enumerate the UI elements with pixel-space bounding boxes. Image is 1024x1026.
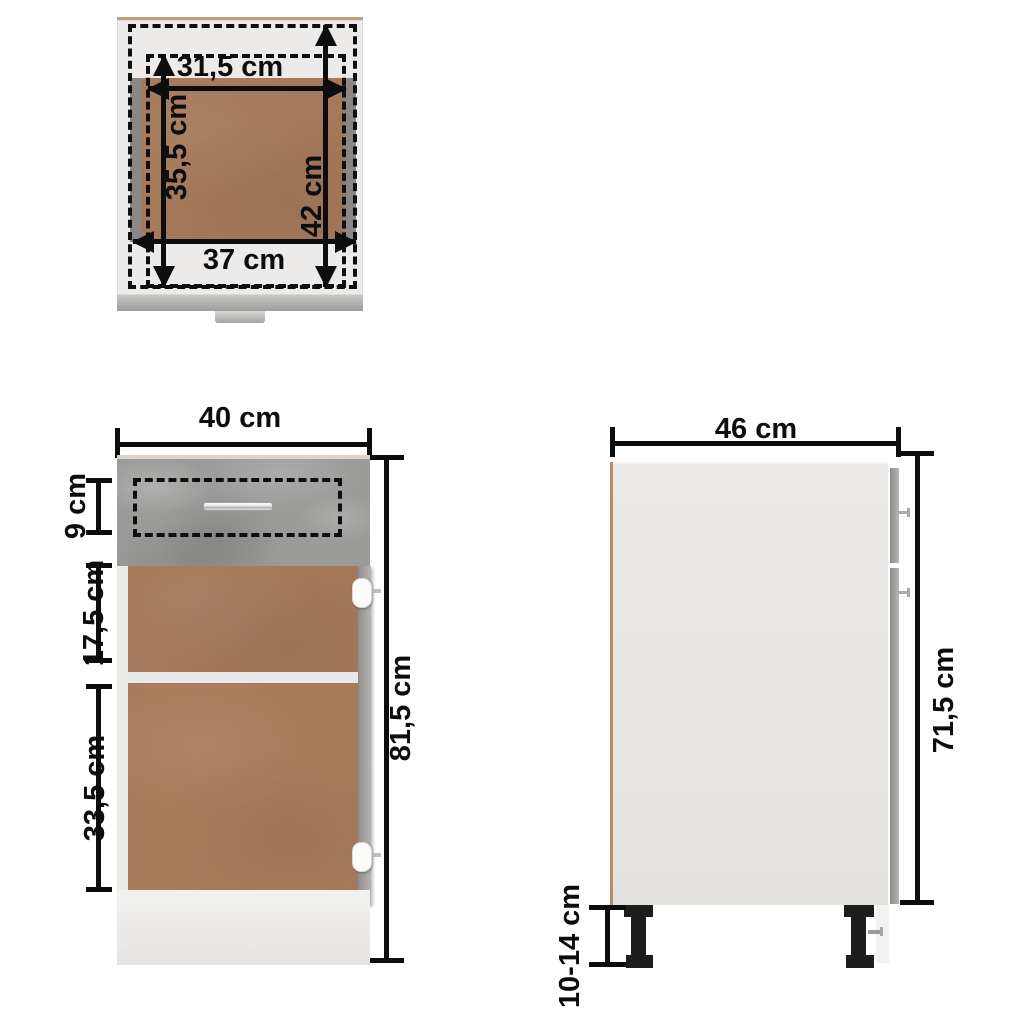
dim-tick <box>86 887 112 892</box>
drawer-handle-top-view <box>215 311 265 323</box>
side-panel <box>613 462 888 905</box>
front-view: 40 cm 81,5 cm 9 cm 17,5 cm 33,5 cm <box>60 400 420 975</box>
dim-line-body-height <box>915 453 920 905</box>
dim-line-depth <box>612 441 898 446</box>
dim-tick <box>115 428 120 458</box>
leg-front-stem <box>631 917 646 955</box>
dim-tick <box>367 428 372 458</box>
drawer-front-edge-side <box>890 468 899 563</box>
drawer-top-view: 31,5 cm 35,5 cm 42 cm 37 cm <box>117 17 363 323</box>
leg-front-foot <box>626 955 653 968</box>
dim-label-outer-depth: 42 cm <box>297 141 327 251</box>
dim-tick <box>86 684 112 689</box>
dim-label-outer-width: 37 cm <box>144 245 344 275</box>
side-view: 46 cm 71,5 cm 10-14 cm <box>550 400 980 1012</box>
hinge-pin-bottom <box>372 853 381 857</box>
dim-label-inner-width: 31,5 cm <box>130 52 330 82</box>
dim-label-inner-depth: 35,5 cm <box>162 82 192 212</box>
leg-back-top-flange <box>844 905 874 917</box>
cabinet-left-side-edge <box>117 566 128 890</box>
dim-label-total-height: 81,5 cm <box>386 638 418 778</box>
door-hinge-top <box>352 578 372 608</box>
drawer-handle-side <box>899 511 907 514</box>
dim-label-upper-section: 17,5 cm <box>79 548 109 678</box>
dim-line-width <box>117 442 370 447</box>
dim-tick <box>370 455 404 460</box>
dim-label-depth: 46 cm <box>656 414 856 444</box>
dim-line-leg-height <box>605 905 610 967</box>
door-edge-side <box>890 568 899 904</box>
dim-tick <box>610 427 615 457</box>
leg-back-foot <box>846 955 874 968</box>
door-handle-side <box>899 591 907 594</box>
open-interior-upper <box>128 566 358 672</box>
leg-back-stem <box>851 917 866 955</box>
dim-tick <box>370 958 404 963</box>
shelf-divider <box>128 672 358 683</box>
hinge-pin-top <box>372 589 381 593</box>
drawer-handle <box>203 502 273 511</box>
leg-adjuster-pin <box>868 930 880 934</box>
leg-front-top-flange <box>624 905 653 917</box>
door-hinge-bottom <box>352 842 372 872</box>
plinth-panel <box>117 890 370 965</box>
cabinet-dimension-diagram: { "views": { "top": { "labels": { "inner… <box>0 0 1024 1024</box>
dim-label-width: 40 cm <box>140 403 340 433</box>
dim-tick <box>900 900 934 905</box>
dim-label-lower-section: 33,5 cm <box>80 723 110 853</box>
open-interior-lower <box>128 683 358 890</box>
dim-line-drawer-height <box>96 478 101 535</box>
dim-label-leg-height: 10-14 cm <box>555 866 585 1026</box>
drawer-front-edge <box>117 295 363 311</box>
dim-tick <box>589 905 626 910</box>
dim-tick <box>589 962 626 967</box>
dim-label-drawer-height: 9 cm <box>61 461 91 551</box>
dim-label-body-height: 71,5 cm <box>929 630 961 770</box>
